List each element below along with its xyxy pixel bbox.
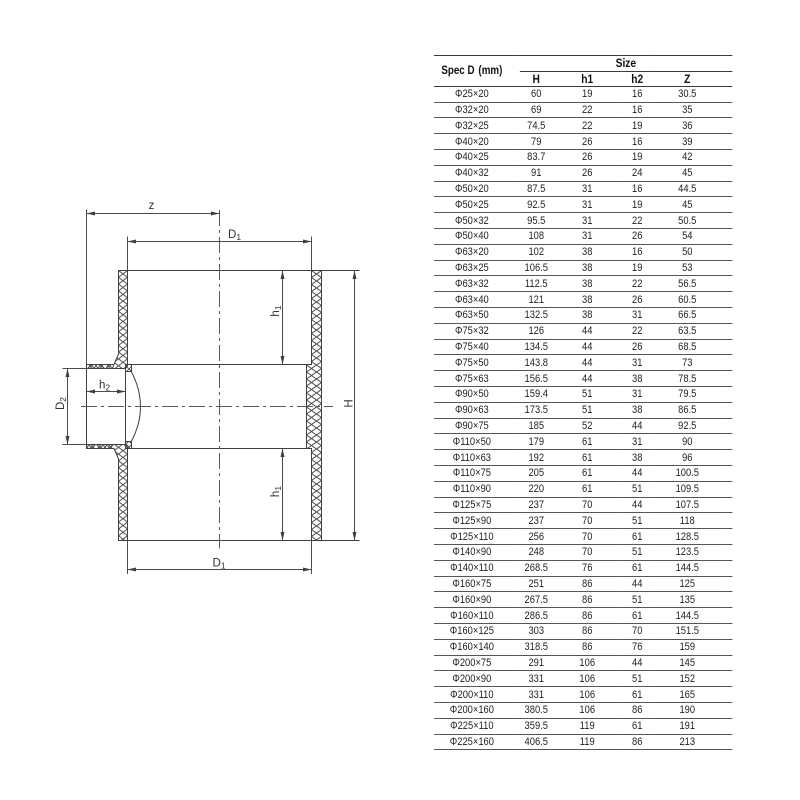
svg-text:h2: h2 bbox=[99, 380, 110, 393]
svg-text:h1: h1 bbox=[270, 486, 283, 497]
svg-text:h1: h1 bbox=[270, 305, 283, 316]
svg-text:D1: D1 bbox=[213, 558, 226, 571]
svg-text:D1: D1 bbox=[228, 229, 241, 242]
svg-text:D2: D2 bbox=[55, 397, 68, 410]
svg-text:z: z bbox=[149, 200, 155, 212]
svg-text:H: H bbox=[343, 399, 355, 407]
